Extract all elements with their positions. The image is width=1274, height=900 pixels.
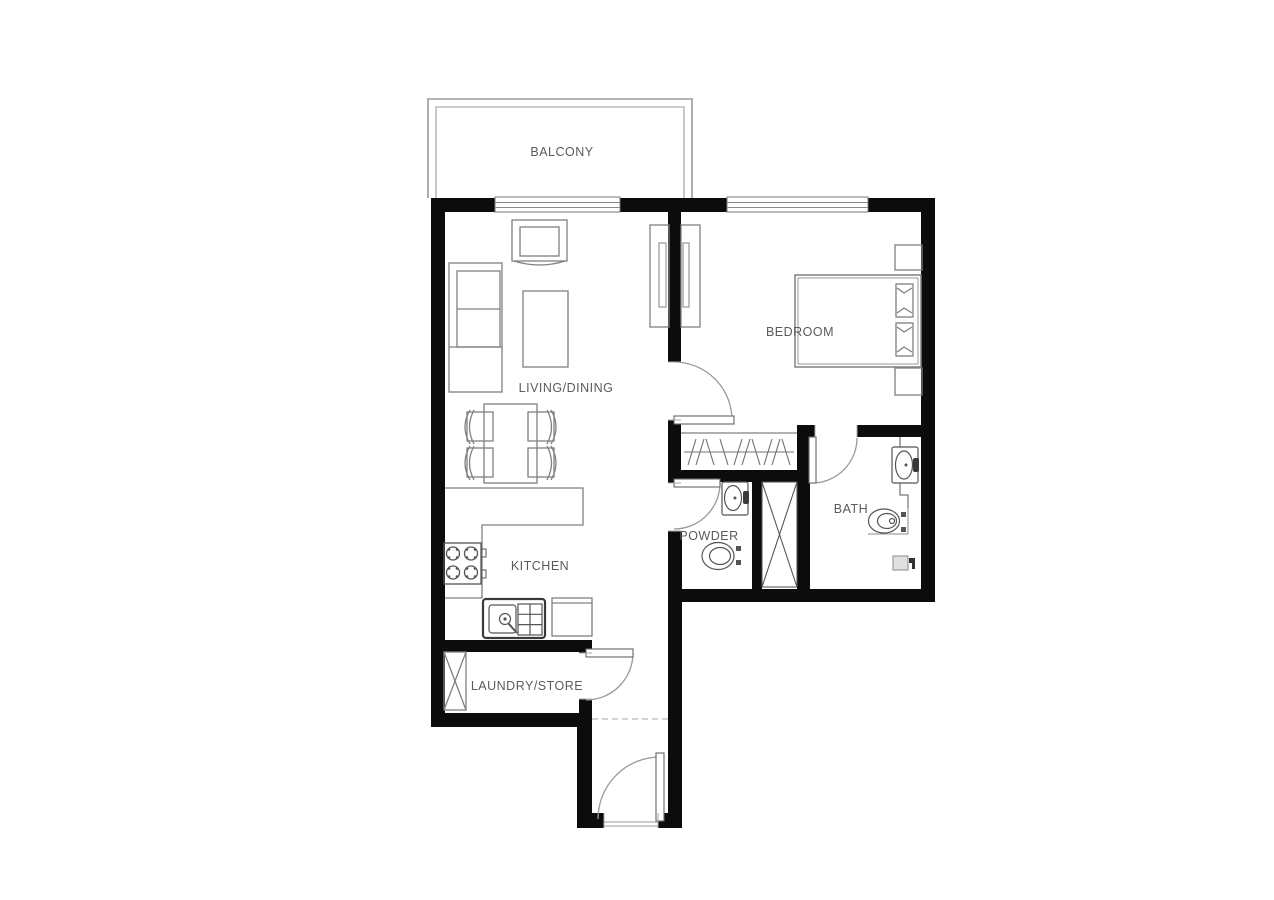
door-leaf: [586, 649, 633, 657]
bedroom: [681, 225, 922, 395]
dining-chair: [465, 410, 493, 444]
wall-segment: [797, 425, 810, 589]
vanity-basin: [725, 486, 742, 511]
wall-segment: [921, 198, 935, 602]
bedroom-door: [674, 362, 734, 424]
floor-plan: BALCONY: [0, 0, 1274, 900]
faucet-dot: [503, 617, 506, 620]
dining-table: [484, 404, 537, 483]
powder-toilet: [702, 543, 741, 570]
door-swing-arc: [598, 757, 660, 819]
wall-segment: [431, 198, 495, 212]
wall-segment: [579, 699, 592, 713]
wall-segment: [577, 713, 592, 828]
living-dining-room: [449, 220, 669, 483]
wall-segment: [752, 482, 762, 589]
balcony-window: [495, 197, 620, 212]
floor-drain: [893, 556, 908, 570]
powder-room: [702, 482, 749, 570]
bath-room: [868, 437, 919, 570]
bath-door: [809, 437, 857, 483]
vanity-basin: [896, 451, 913, 479]
coffee-table: [523, 291, 568, 367]
dining-chair: [465, 446, 493, 480]
window-frame: [727, 197, 868, 212]
tv-unit: [650, 225, 669, 327]
bath-label: BATH: [834, 502, 868, 516]
toilet-bowl-inner: [710, 548, 731, 565]
door-leaf: [656, 753, 664, 821]
powder-label: POWDER: [679, 529, 738, 543]
kitchen-sink: [483, 599, 545, 638]
nightstand: [895, 245, 922, 270]
toilet-tank-dot: [901, 527, 906, 532]
basin-drain-dot: [905, 464, 908, 467]
wall-segment: [668, 212, 681, 362]
wardrobe: [681, 225, 700, 327]
toilet-flush-dot: [890, 519, 895, 524]
toilet-tank-dot: [736, 560, 741, 565]
bedroom-window: [727, 197, 868, 212]
toilet-bowl-inner: [878, 514, 897, 529]
nightstand: [895, 368, 922, 395]
toilet-tank-dot: [901, 512, 906, 517]
tv-unit-slot: [659, 243, 666, 307]
laundry-store-room: [444, 652, 466, 710]
bed: [795, 275, 921, 367]
dining-chair: [528, 410, 556, 444]
duct-shaft: [762, 482, 797, 587]
vanity-counter-line: [900, 483, 908, 508]
toilet-tank-dot: [736, 546, 741, 551]
pillow: [896, 284, 913, 317]
refrigerator-outline: [552, 598, 592, 636]
powder-door: [674, 479, 720, 529]
balcony-label: BALCONY: [530, 145, 593, 159]
valve-icon: [909, 558, 915, 569]
basin-drain-dot: [734, 497, 737, 500]
wall-segment: [431, 640, 579, 652]
armchair: [512, 220, 567, 265]
bath-toilet: [868, 508, 908, 534]
burner-grates: [448, 548, 477, 578]
kitchen-label: KITCHEN: [511, 559, 569, 573]
wall-segment: [668, 531, 682, 828]
door-swing-arc: [674, 483, 720, 529]
living-dining-label: LIVING/DINING: [519, 381, 614, 395]
vanity-tap-icon: [913, 458, 919, 472]
pillow: [896, 323, 913, 356]
bath-vanity-sink: [892, 437, 919, 508]
sofa: [449, 263, 502, 392]
dining-chair: [528, 446, 556, 480]
window-frame: [495, 197, 620, 212]
stove: [444, 543, 486, 584]
laundry-store-label: LAUNDRY/STORE: [471, 679, 583, 693]
armchair-seat: [520, 227, 559, 256]
entry-door: [598, 753, 664, 826]
floor-plan-canvas: BALCONY: [0, 0, 1274, 900]
bed-outline: [795, 275, 921, 367]
door-leaf: [809, 437, 816, 483]
door-leaf: [674, 416, 734, 424]
wardrobe-outline: [681, 225, 700, 327]
toilet-bowl: [702, 543, 734, 570]
wall-segment: [431, 713, 592, 727]
door-swing-arc: [812, 438, 857, 483]
door-swing-arc: [674, 362, 732, 420]
wall-segment: [797, 425, 815, 437]
vanity-tap-icon: [743, 491, 749, 504]
powder-vanity-sink: [722, 482, 749, 515]
wardrobe-slot: [683, 243, 689, 307]
laundry-door: [586, 649, 633, 700]
closet-hanging-rail: [681, 433, 797, 465]
door-swing-arc: [586, 653, 633, 700]
wall-segment: [620, 198, 728, 212]
dining-set: [465, 404, 556, 483]
refrigerator: [552, 598, 592, 636]
wall-segment: [857, 425, 921, 437]
bedroom-label: BEDROOM: [766, 325, 834, 339]
washing-machine: [444, 652, 466, 710]
wall-segment: [668, 420, 681, 483]
wall-segment: [668, 589, 935, 602]
